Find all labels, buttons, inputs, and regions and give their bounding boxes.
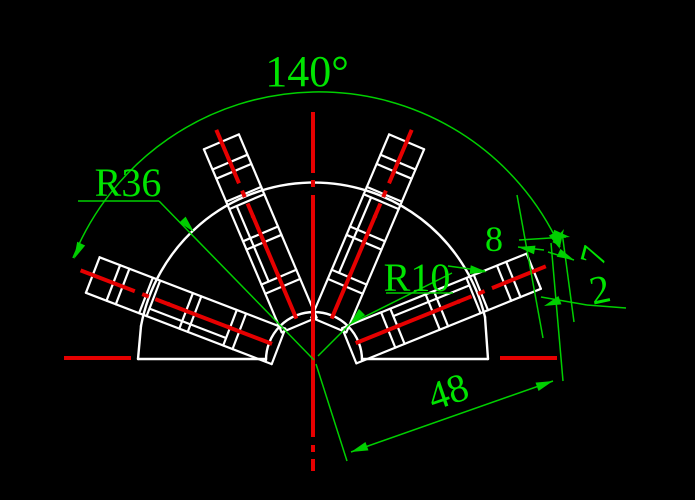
rib-centerline: [478, 291, 485, 294]
rib-centerline: [142, 294, 149, 297]
dimension-line: [316, 364, 347, 461]
radius-r36-label: R36: [95, 160, 162, 205]
cad-drawing-canvas: 140° R36 R10 8 7 2 48: [0, 0, 695, 500]
rib-center-dot: [456, 299, 460, 303]
fan-left-cap: [138, 326, 141, 359]
dimension-line: [551, 243, 563, 381]
rib-center-dot: [348, 273, 352, 277]
rib-centerline: [492, 266, 546, 288]
rib-centerline: [389, 130, 412, 183]
rib-center-dot: [226, 325, 230, 329]
radius-r10-label: R10: [384, 255, 451, 300]
rib-center-dot: [373, 214, 377, 218]
rib-center-dot: [397, 323, 401, 327]
dimension-line: [562, 232, 574, 322]
rib-centerline: [383, 191, 386, 198]
rib-centerline: [242, 191, 245, 198]
seven-label: 7: [572, 242, 615, 270]
rib-center-dot: [251, 214, 255, 218]
rib-centerline: [248, 204, 297, 319]
dimension-arrowhead: [349, 442, 368, 456]
dimension-line: [318, 324, 350, 356]
dimension-arrowhead: [70, 242, 85, 261]
rib-center-dot: [276, 273, 280, 277]
dimension-arrowhead: [179, 217, 197, 235]
rib-center-dot: [166, 302, 170, 306]
dimension-line: [517, 195, 543, 338]
rib-centerline: [216, 130, 239, 183]
cad-viewport: 140° R36 R10 8 7 2 48: [0, 0, 695, 500]
rib-width-label: 8: [485, 219, 503, 259]
rib-centerline: [155, 299, 272, 344]
two-label: 2: [585, 265, 614, 313]
dimension-arrowhead: [536, 377, 555, 391]
rib-centerline: [356, 296, 472, 343]
angle-dimension-label: 140°: [265, 47, 349, 96]
fan-right-cap: [485, 317, 488, 359]
rib-centerline: [332, 204, 381, 319]
